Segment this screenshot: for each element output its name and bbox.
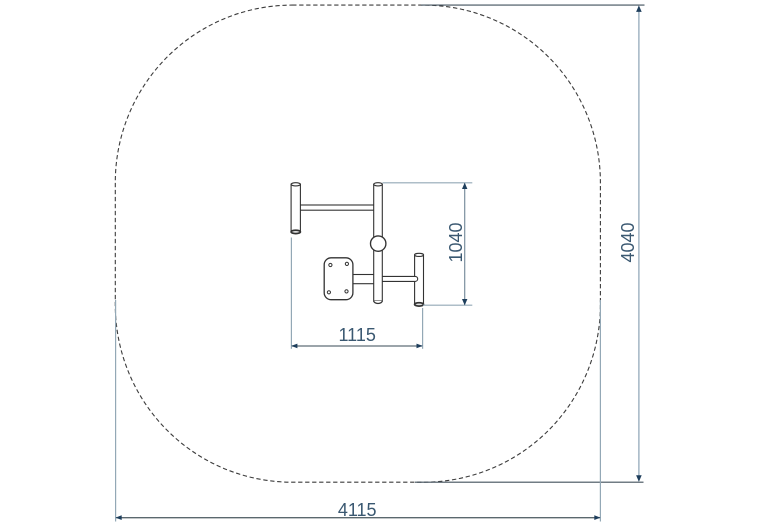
svg-text:1115: 1115 — [339, 325, 376, 345]
svg-text:4115: 4115 — [338, 500, 377, 520]
svg-text:1040: 1040 — [446, 222, 466, 262]
svg-text:4040: 4040 — [618, 222, 638, 262]
